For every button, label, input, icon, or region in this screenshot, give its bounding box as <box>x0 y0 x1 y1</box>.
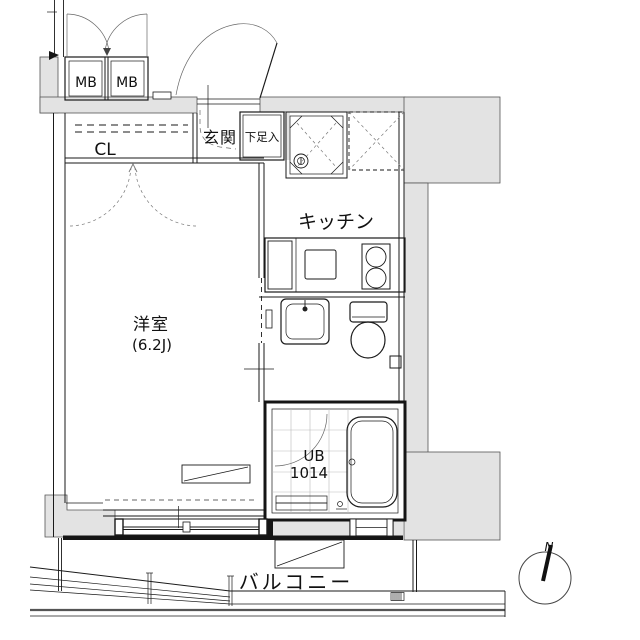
parapet-line-slanted <box>30 584 230 601</box>
compass: N <box>519 540 571 604</box>
washroom-partition <box>244 163 274 402</box>
wall-right-band <box>404 183 428 453</box>
mb-door-swing-arc <box>67 14 109 51</box>
kitchen: キッチン <box>259 211 405 297</box>
entrance-label: 玄関 <box>203 128 237 147</box>
floor-plan: MB MB CL 玄関 下足入 <box>0 0 640 640</box>
reserved-space <box>349 112 404 170</box>
mb-door-arrow-icon <box>103 48 111 56</box>
mb-door-swing-arc <box>105 14 147 51</box>
washer-pad-diagonal <box>277 542 342 566</box>
window-cap <box>115 519 123 535</box>
room-name-label: 洋室 <box>133 315 169 335</box>
balcony-drain-icon <box>391 593 404 601</box>
toilet-bowl <box>351 322 385 358</box>
balcony: バルコニー <box>30 538 505 617</box>
entrance-door-leaf <box>260 43 277 98</box>
stove-burner-icon <box>366 247 386 267</box>
sliding-door-handle <box>266 310 272 328</box>
meter-boxes: MB MB <box>65 14 171 100</box>
washroom <box>281 299 401 368</box>
bath-outer-wall <box>265 402 405 520</box>
window-cap <box>259 519 267 535</box>
wall-corner-top-right <box>404 97 500 183</box>
parapet-line-slanted <box>30 590 230 604</box>
shoe-storage-label: 下足入 <box>245 130 280 144</box>
wall-top-right <box>260 97 405 112</box>
wall-corner-bottom-right <box>404 452 500 540</box>
kitchen-sink <box>305 250 336 279</box>
stove-burner-icon <box>366 268 386 288</box>
floor-plan-svg: MB MB CL 玄関 下足入 <box>0 0 640 640</box>
laundry-space <box>286 112 347 178</box>
vanity-faucet-icon <box>303 307 308 312</box>
closet-door-swing-arc <box>70 168 131 226</box>
compass-north-label: N <box>545 540 554 554</box>
toilet-tank <box>350 302 387 322</box>
meter-box-label: MB <box>75 75 97 91</box>
bath-window-cap <box>350 519 356 536</box>
bath-type-label: UB <box>303 447 324 465</box>
counter-unit-diagonal <box>184 467 248 481</box>
closet-door-swing-arc <box>135 168 196 226</box>
living-room: 洋室 (6.2J) <box>105 315 267 535</box>
laundry-pan-outline <box>286 112 347 178</box>
wall-notch <box>153 92 171 99</box>
room-size-label: (6.2J) <box>132 336 172 354</box>
pan-corner-mark <box>331 116 343 128</box>
bath-window-cap <box>387 519 393 536</box>
closet-label: CL <box>94 140 116 160</box>
bath-size-label: 1014 <box>290 464 328 482</box>
pan-corner-mark <box>290 116 302 128</box>
balcony-label: バルコニー <box>239 570 354 594</box>
stove <box>362 244 390 289</box>
meter-box-label: MB <box>116 75 138 91</box>
laundry-pan-inner <box>290 116 343 174</box>
window-meeting-stile <box>183 522 190 532</box>
closet-door-arrow-icon <box>129 164 137 172</box>
kitchen-cabinet <box>268 241 292 289</box>
entrance-door-swing-arc <box>176 24 277 95</box>
bathroom: UB 1014 <box>265 402 405 536</box>
parapet-line-slanted <box>30 567 230 591</box>
entrance: 玄関 下足入 <box>176 24 284 160</box>
kitchen-label: キッチン <box>298 211 374 233</box>
